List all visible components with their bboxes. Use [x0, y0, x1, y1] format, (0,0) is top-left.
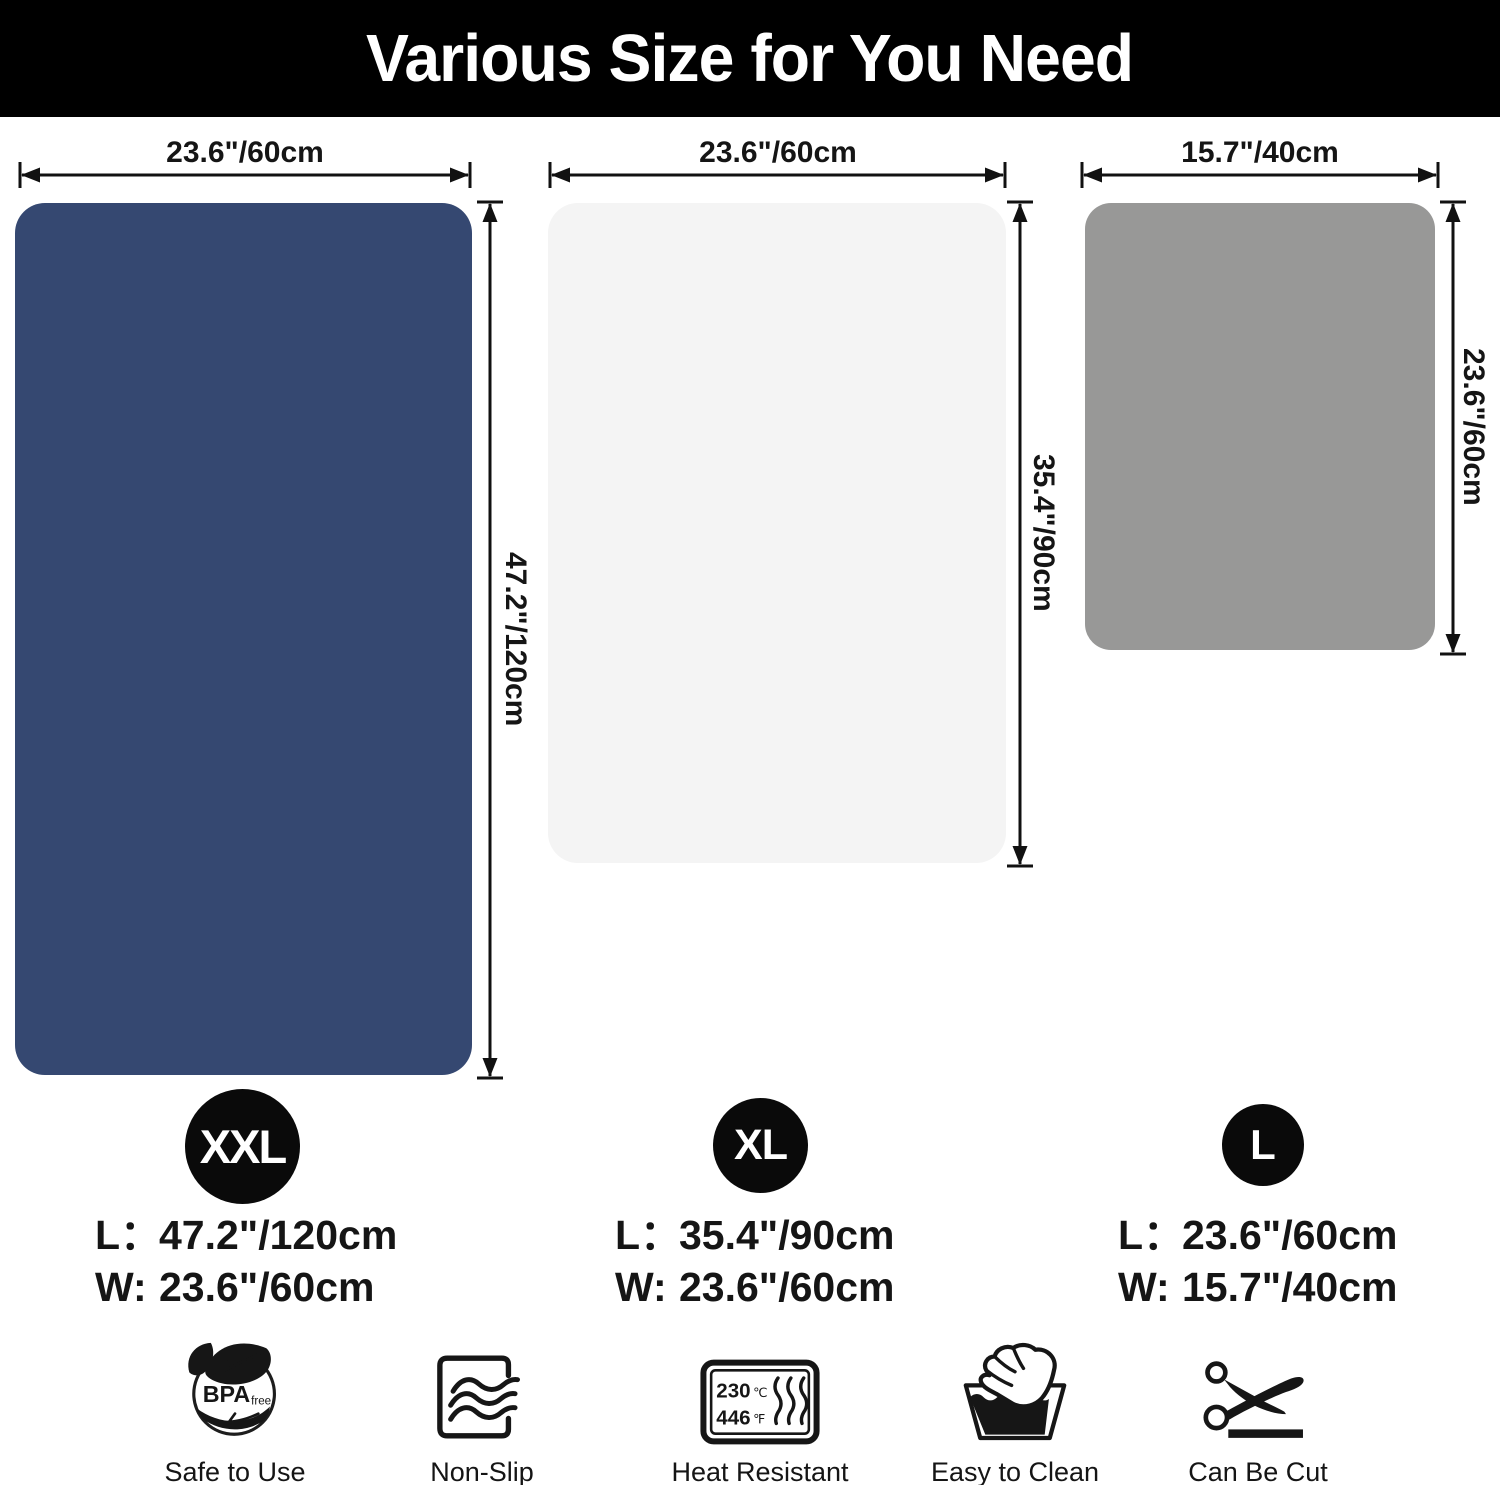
- svg-text:BPA: BPA: [203, 1381, 251, 1407]
- l-width-dimension-arrow: [1080, 162, 1440, 188]
- size-badge-xl-text: XL: [734, 1121, 787, 1170]
- easy-to-clean-icon: [959, 1333, 1071, 1445]
- feature-heat-resistant: 230 ℃ 446 ℉ Heat Resistant: [650, 1333, 870, 1485]
- l-specs: L：23.6"/60cm W:15.7"/40cm: [1118, 1209, 1398, 1313]
- spec-width-row: W:23.6"/60cm: [95, 1261, 397, 1313]
- size-badge-xxl: XXL: [185, 1089, 300, 1204]
- xxl-width-dimension-arrow: [18, 162, 472, 188]
- product-size-infographic: Various Size for You Need 23.6"/60cm 47.…: [0, 0, 1500, 1485]
- feature-label: Heat Resistant: [671, 1457, 848, 1485]
- xl-width-dimension-arrow: [548, 162, 1007, 188]
- svg-text:230: 230: [716, 1380, 750, 1403]
- spec-length-row: L：35.4"/90cm: [615, 1209, 895, 1261]
- feature-can-be-cut: Can Be Cut: [1148, 1333, 1368, 1485]
- xxl-height-label: 47.2"/120cm: [498, 203, 532, 1075]
- spec-width-row: W:15.7"/40cm: [1118, 1261, 1398, 1313]
- bpa-free-icon: BPA free: [180, 1333, 290, 1445]
- svg-text:446: 446: [716, 1406, 750, 1429]
- can-be-cut-icon: [1202, 1333, 1314, 1445]
- size-badge-xxl-text: XXL: [200, 1119, 285, 1174]
- feature-safe-to-use: BPA free Safe to Use: [125, 1333, 345, 1485]
- svg-text:℃: ℃: [753, 1385, 767, 1400]
- feature-label: Non-Slip: [430, 1457, 534, 1485]
- header-bar: Various Size for You Need: [0, 0, 1500, 117]
- mat-preview-xxl: [15, 203, 472, 1075]
- svg-text:℉: ℉: [753, 1411, 765, 1426]
- spec-length-row: L：23.6"/60cm: [1118, 1209, 1398, 1261]
- mat-preview-xl: [548, 203, 1006, 863]
- heat-resistant-icon: 230 ℃ 446 ℉: [700, 1333, 820, 1445]
- feature-label: Safe to Use: [164, 1457, 305, 1485]
- size-badge-l: L: [1222, 1104, 1304, 1186]
- page-title: Various Size for You Need: [366, 20, 1133, 97]
- l-height-label: 23.6"/60cm: [1456, 203, 1490, 650]
- feature-label: Can Be Cut: [1188, 1457, 1328, 1485]
- spec-length-row: L：47.2"/120cm: [95, 1209, 397, 1261]
- size-badge-l-text: L: [1250, 1121, 1276, 1169]
- xl-specs: L：35.4"/90cm W:23.6"/60cm: [615, 1209, 895, 1313]
- feature-label: Easy to Clean: [931, 1457, 1099, 1485]
- feature-non-slip: Non-Slip: [372, 1333, 592, 1485]
- xl-height-label: 35.4"/90cm: [1026, 203, 1060, 863]
- mat-preview-l: [1085, 203, 1435, 650]
- spec-width-row: W:23.6"/60cm: [615, 1261, 895, 1313]
- size-badge-xl: XL: [713, 1098, 808, 1193]
- xxl-specs: L：47.2"/120cm W:23.6"/60cm: [95, 1209, 397, 1313]
- svg-text:free: free: [251, 1395, 271, 1408]
- feature-easy-to-clean: Easy to Clean: [905, 1333, 1125, 1485]
- non-slip-icon: [425, 1333, 539, 1445]
